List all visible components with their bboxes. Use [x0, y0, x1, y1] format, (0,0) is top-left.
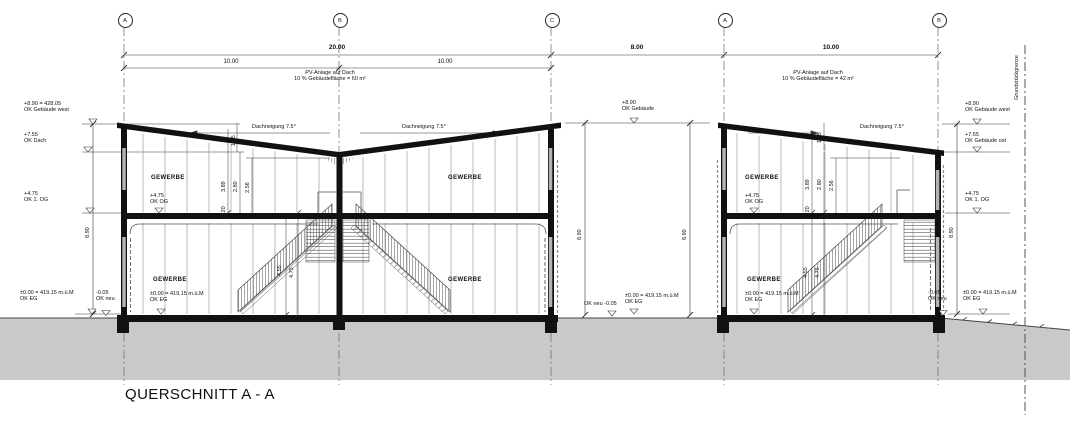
vdim-256-b2: 2.56 — [829, 180, 835, 191]
level-ok-eg-r: ±0.00 = 419.15 m.ü.M OK EG — [963, 290, 1017, 302]
level-ok-gebaeude-mid: +8.90 OK Gebäude — [622, 100, 654, 112]
vdim-389-b2: 3.89 — [805, 179, 811, 190]
vdim-280-b1: 2.80 — [233, 181, 239, 192]
dim-right-bldg: 10.00 — [823, 45, 839, 51]
level-ok-1og-l: +4.75 OK 1. OG — [24, 191, 48, 203]
slab-og — [121, 213, 554, 219]
room-gewerbe-eg-right: GEWERBE — [448, 277, 482, 283]
dim-total-left: 20.00 — [329, 45, 345, 51]
grid-bubble-b-4: B — [932, 13, 947, 28]
room-gewerbe-eg-b2: GEWERBE — [747, 277, 781, 283]
note-dachneigung-left2: Dachneigung 7.5° — [402, 124, 446, 130]
vdim-135-b2: 1.35 — [817, 132, 823, 143]
vdim-455-b2: 4.55 — [803, 267, 809, 278]
vdim-890-mid1: 8.90 — [577, 229, 583, 240]
vdim-475-b1: 4.75 — [289, 267, 295, 278]
dim-bay-bc: 10.00 — [437, 59, 452, 65]
vdim-455-b1: 4.55 — [277, 265, 283, 276]
slab-og-b2 — [721, 213, 941, 219]
level-ok-og-int-left: +4.75 OK OG — [150, 193, 168, 205]
room-gewerbe-og-left: GEWERBE — [151, 175, 185, 181]
slab-eg-b2 — [717, 315, 945, 322]
vdim-256-b1: 2.56 — [245, 182, 251, 193]
room-gewerbe-eg-left: GEWERBE — [153, 277, 187, 283]
vdim-475-b2: 4.75 — [815, 267, 821, 278]
level-ok-eg-int-left: ±0.00 = 419.15 m.ü.M OK EG — [150, 291, 204, 303]
drawing-title: QUERSCHNITT A - A — [125, 386, 275, 403]
note-pv-left: PV-Anlage auf Dach 10 % Gebäudefläche = … — [294, 70, 366, 82]
level-ok-eg-l: ±0.00 = 419.15 m.ü.M OK EG — [20, 290, 74, 302]
level-ok-neu-r: -0.05 OK neu — [928, 290, 947, 302]
grid-bubble-a-3: A — [718, 13, 733, 28]
level-ok-neu-l: -0.05 OK neu — [96, 290, 115, 302]
vdim-135-b1: 1.35 — [231, 135, 237, 146]
property-line-label: Grundstückgrenze — [1014, 55, 1020, 100]
vdim-890-right: 8.90 — [949, 227, 955, 238]
room-gewerbe-og-right: GEWERBE — [448, 175, 482, 181]
vdim-890-mid2: 8.90 — [682, 229, 688, 240]
level-ok-eg-mid: ±0.00 = 419.15 m.ü.M OK EG — [625, 293, 679, 305]
level-ok-dach-l: +7.55 OK Dach — [24, 132, 46, 144]
note-pv-right: PV-Anlage auf Dach 10 % Gebäudefläche = … — [782, 70, 854, 82]
column-b — [337, 155, 343, 315]
section-linework — [0, 0, 1070, 429]
grid-bubble-a-0: A — [118, 13, 133, 28]
note-dachneigung-right: Dachneigung 7.5° — [860, 124, 904, 130]
level-lines-middle — [565, 120, 710, 318]
dim-gap: 8.00 — [631, 45, 644, 51]
level-ok-eg-int-b2: ±0.00 = 419.15 m.ü.M OK EG — [745, 291, 799, 303]
level-ok-gebaeude-west-l: +8.90 = 428.05 OK Gebäude west — [24, 101, 69, 113]
vdim-280-b2: 2.80 — [817, 179, 823, 190]
grid-bubble-c-2: C — [545, 13, 560, 28]
vdim-020-b1: .20 — [221, 206, 227, 214]
ground-terrain — [0, 317, 1070, 380]
dim-bay-ab: 10.00 — [223, 59, 238, 65]
level-ok-gebaeude-west-r: +8.90 OK Gebäude west — [965, 101, 1010, 113]
vdim-890-left: 8.90 — [85, 227, 91, 238]
level-ok-1og-r: +4.75 OK 1. OG — [965, 191, 989, 203]
vdim-389-b1: 3.89 — [221, 181, 227, 192]
dimension-chains — [121, 52, 941, 71]
slab-eg — [117, 315, 558, 322]
vdim-020-b2: .20 — [805, 206, 811, 214]
section-drawing-canvas: 20.008.0010.0010.0010.00PV-Anlage auf Da… — [0, 0, 1070, 429]
grid-bubble-b-1: B — [333, 13, 348, 28]
room-gewerbe-og-b2: GEWERBE — [745, 175, 779, 181]
level-ok-og-int-b2: +4.75 OK OG — [745, 193, 763, 205]
note-dachneigung-left1: Dachneigung 7.5° — [252, 124, 296, 130]
level-ok-neu-mid: OK neu -0.05 — [584, 301, 617, 307]
level-ok-gebaeude-ost-r: +7.55 OK Gebäude ost — [965, 132, 1006, 144]
